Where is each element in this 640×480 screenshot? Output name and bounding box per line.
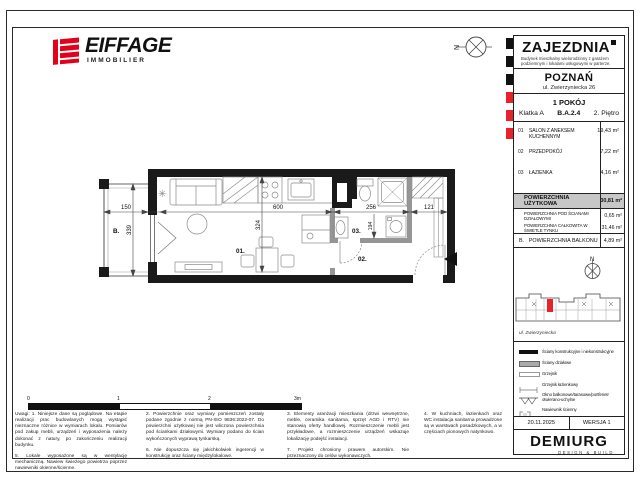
room-name: SALON Z ANEKSEM KUCHENNYM bbox=[529, 128, 591, 140]
floor-label: 2. Piętro bbox=[594, 110, 619, 117]
balcony-row-label: POWIERZCHNIA BALKONU bbox=[529, 238, 600, 244]
legend-item: Ściany konstrukcyjne i niekonstrukcyjne bbox=[514, 346, 624, 357]
room-area: 7,22 m² bbox=[591, 149, 619, 155]
note-2: 2. Powierzchnie oraz wymiary pomieszczeń… bbox=[146, 412, 264, 443]
unit-box: 1 POKÓJ Klatka A B.A.2.4 2. Piętro bbox=[514, 93, 624, 121]
company-box: DEMIURG DESIGN & BUILD bbox=[514, 429, 624, 456]
unit-id: B.A.2.4 bbox=[557, 110, 580, 117]
note-6: 6. Nie dopuszcza się jakichkolwiek inger… bbox=[146, 448, 264, 460]
balcony-row-no: B. bbox=[514, 238, 529, 244]
notes-column-2: 2. Powierzchnie oraz wymiary pomieszczeń… bbox=[146, 412, 264, 460]
dim-balcony-height: 339 bbox=[127, 224, 133, 235]
dining-table bbox=[241, 237, 294, 272]
city-name: POZNAŃ bbox=[514, 72, 624, 84]
usable-area-row: POWIERZCHNIA UŻYTKOWA 30,81 m² bbox=[514, 193, 624, 208]
washing-machine bbox=[386, 216, 406, 237]
toilet bbox=[357, 179, 373, 201]
date-value: 20.11.2025 bbox=[514, 417, 570, 429]
eiffage-logo: EIFFAGE IMMOBILIER bbox=[50, 33, 170, 69]
notes-column-1: Uwagi: 1. Niniejsze dane są poglądowe. N… bbox=[15, 412, 127, 472]
sub-areas: POWIERZCHNIA POD ŚCIANAMI DZIAŁOWYMI 0,6… bbox=[514, 208, 624, 233]
washbasin bbox=[333, 217, 348, 238]
room-area: 4,16 m² bbox=[591, 170, 619, 176]
highlighted-unit bbox=[547, 299, 553, 312]
room-name: ŁAZIENKA bbox=[529, 170, 591, 176]
scale-bar: 0 1 2 3m bbox=[28, 396, 301, 409]
building-outline bbox=[516, 294, 620, 321]
street-label: ul. Zwierzyniecka bbox=[519, 330, 556, 336]
label-living-room: 01. bbox=[236, 248, 245, 255]
balcony bbox=[99, 179, 148, 277]
plant-icon: ✳ bbox=[158, 189, 166, 200]
kitchen-cabinet bbox=[302, 215, 330, 243]
project-title-box: ZAJEZDNIA Budynek mieszkalny wielorodzin… bbox=[514, 36, 624, 68]
sub-area-label: POWIERZCHNIA POD ŚCIANAMI DZIAŁOWYMI bbox=[514, 211, 600, 221]
sub-area-row: POWIERZCHNIA CAŁKOWITA W ŚWIETLE TYNKU 3… bbox=[514, 222, 624, 233]
city-box: POZNAŃ ul. Zwierzyniecka 26 bbox=[514, 68, 624, 93]
label-bathroom: 03. bbox=[352, 228, 361, 235]
note-4: 4. W kuchniach, łazienkach oraz WC insta… bbox=[424, 412, 502, 437]
shower bbox=[378, 178, 407, 206]
room-name: PRZEDPOKÓJ bbox=[529, 149, 591, 155]
scale-tick-2: 2 bbox=[208, 396, 211, 402]
legend-item: Grzejnik bbox=[514, 368, 624, 379]
compass-n-label: N bbox=[454, 45, 461, 50]
staircase-label: Klatka A bbox=[519, 110, 544, 117]
room-number: 03 bbox=[518, 170, 529, 176]
legend-symbol-window bbox=[519, 393, 538, 401]
usable-area-label: POWIERZCHNIA UŻYTKOWA bbox=[514, 195, 600, 207]
street-address: ul. Zwierzyniecka 26 bbox=[514, 85, 624, 91]
dim-hall-width: 121 bbox=[424, 205, 435, 211]
sub-area-value: 31,46 m² bbox=[600, 225, 624, 231]
site-plan: N ul. Zwierzyniecka bbox=[514, 248, 624, 341]
living-furniture: ✳ bbox=[158, 179, 294, 272]
room-row: 03 ŁAZIENKA 4,16 m² bbox=[514, 167, 624, 188]
coffee-table bbox=[187, 214, 207, 234]
label-hallway: 02. bbox=[358, 256, 367, 263]
note-7: 7. Projekt chroniony prawem autorskim. N… bbox=[287, 448, 409, 460]
note-3: 3. Elementy aranżacji mieszkania (drzwi … bbox=[287, 412, 409, 443]
project-name: ZAJEZDNIA bbox=[522, 39, 610, 56]
room-row: 02 PRZEDPOKÓJ 7,22 m² bbox=[514, 146, 624, 167]
balcony-area-row: B. POWIERZCHNIA BALKONU 4,89 m² bbox=[514, 233, 624, 247]
project-title-square-icon bbox=[611, 40, 616, 45]
legend-item: Okno balkonowe/tarasowe/portfenetr otwie… bbox=[514, 390, 624, 404]
legend-symbol-air-inlet bbox=[519, 406, 538, 414]
label-balcony: B. bbox=[113, 228, 120, 235]
rooms-table: 01 SALON Z ANEKSEM KUCHENNYM 19,43 m² 02… bbox=[514, 121, 624, 193]
hall-wardrobe bbox=[412, 177, 443, 257]
plan-sheet: { "header": { "brand": "EIFFAGE", "brand… bbox=[0, 0, 640, 480]
company-logo: DEMIURG bbox=[514, 434, 624, 449]
eiffage-logo-icon bbox=[50, 34, 82, 66]
title-block: ZAJEZDNIA Budynek mieszkalny wielorodzin… bbox=[513, 35, 625, 455]
legend-symbol-radiator bbox=[519, 370, 538, 378]
legend-symbol-partition-wall bbox=[519, 359, 538, 367]
company-tagline: DESIGN & BUILD bbox=[514, 450, 614, 455]
legend-symbol-structural-wall bbox=[519, 348, 538, 356]
north-compass-icon: N bbox=[450, 32, 496, 62]
shaft bbox=[332, 177, 357, 208]
dim-bath-width: 256 bbox=[366, 205, 377, 211]
sub-area-value: 0,65 m² bbox=[600, 213, 624, 219]
room-labels: B. 01. 02. 03. bbox=[113, 228, 367, 263]
scale-tick-0: 0 bbox=[27, 396, 30, 402]
scale-tick-1: 1 bbox=[117, 396, 120, 402]
floor-plan: ✳ bbox=[55, 160, 475, 305]
legend-item: Nawiewnik ścienny bbox=[514, 404, 624, 415]
unit-type: 1 POKÓJ bbox=[514, 98, 624, 107]
balcony-row-value: 4,89 m² bbox=[599, 238, 624, 244]
usable-area-value: 30,81 m² bbox=[600, 198, 624, 204]
legend-item: Grzejnik łazienkowy bbox=[514, 379, 624, 390]
dim-room-height: 324 bbox=[256, 219, 262, 230]
dim-room-width: 600 bbox=[273, 205, 284, 211]
dim-bath-height: 194 bbox=[368, 222, 374, 231]
note-1: Uwagi: 1. Niniejsze dane są poglądowe. N… bbox=[15, 412, 127, 449]
notes-column-4: 4. W kuchniach, łazienkach oraz WC insta… bbox=[424, 412, 502, 437]
tv-cabinet bbox=[175, 262, 222, 272]
project-subtitle: Budynek mieszkalny wielorodzinny z garaż… bbox=[514, 55, 624, 67]
note-5: 5. Lokale wyposażone są w wentylację mec… bbox=[15, 454, 127, 472]
brand-subtitle: IMMOBILIER bbox=[87, 57, 146, 64]
legend-item: Ściany działowe bbox=[514, 357, 624, 368]
version-value: WERSJA 1 bbox=[570, 417, 625, 429]
room-number: 01 bbox=[518, 128, 529, 134]
sub-area-label: POWIERZCHNIA CAŁKOWITA W ŚWIETLE TYNKU bbox=[514, 223, 600, 233]
balcony-window bbox=[151, 215, 177, 262]
date-version-row: 20.11.2025 WERSJA 1 bbox=[514, 416, 624, 429]
scale-tick-3: 3m bbox=[294, 396, 301, 402]
legend-symbol-bathroom-radiator bbox=[519, 381, 538, 389]
sofa bbox=[170, 179, 222, 205]
room-number: 02 bbox=[518, 149, 529, 155]
room-area: 19,43 m² bbox=[591, 128, 619, 134]
scale-bar-strip bbox=[28, 403, 302, 410]
notes-column-3: 3. Elementy aranżacji mieszkania (drzwi … bbox=[287, 412, 409, 460]
brand-name: EIFFAGE bbox=[85, 34, 171, 58]
site-map-box: N ul. Zwierzyniecka bbox=[514, 247, 624, 341]
value-column-divider bbox=[600, 121, 601, 247]
sub-area-row: POWIERZCHNIA POD ŚCIANAMI DZIAŁOWYMI 0,6… bbox=[514, 210, 624, 222]
room-row: 01 SALON Z ANEKSEM KUCHENNYM 19,43 m² bbox=[514, 125, 624, 146]
dim-balcony-width: 150 bbox=[121, 205, 132, 211]
legend-box: Ściany konstrukcyjne i niekonstrukcyjne … bbox=[514, 341, 624, 416]
